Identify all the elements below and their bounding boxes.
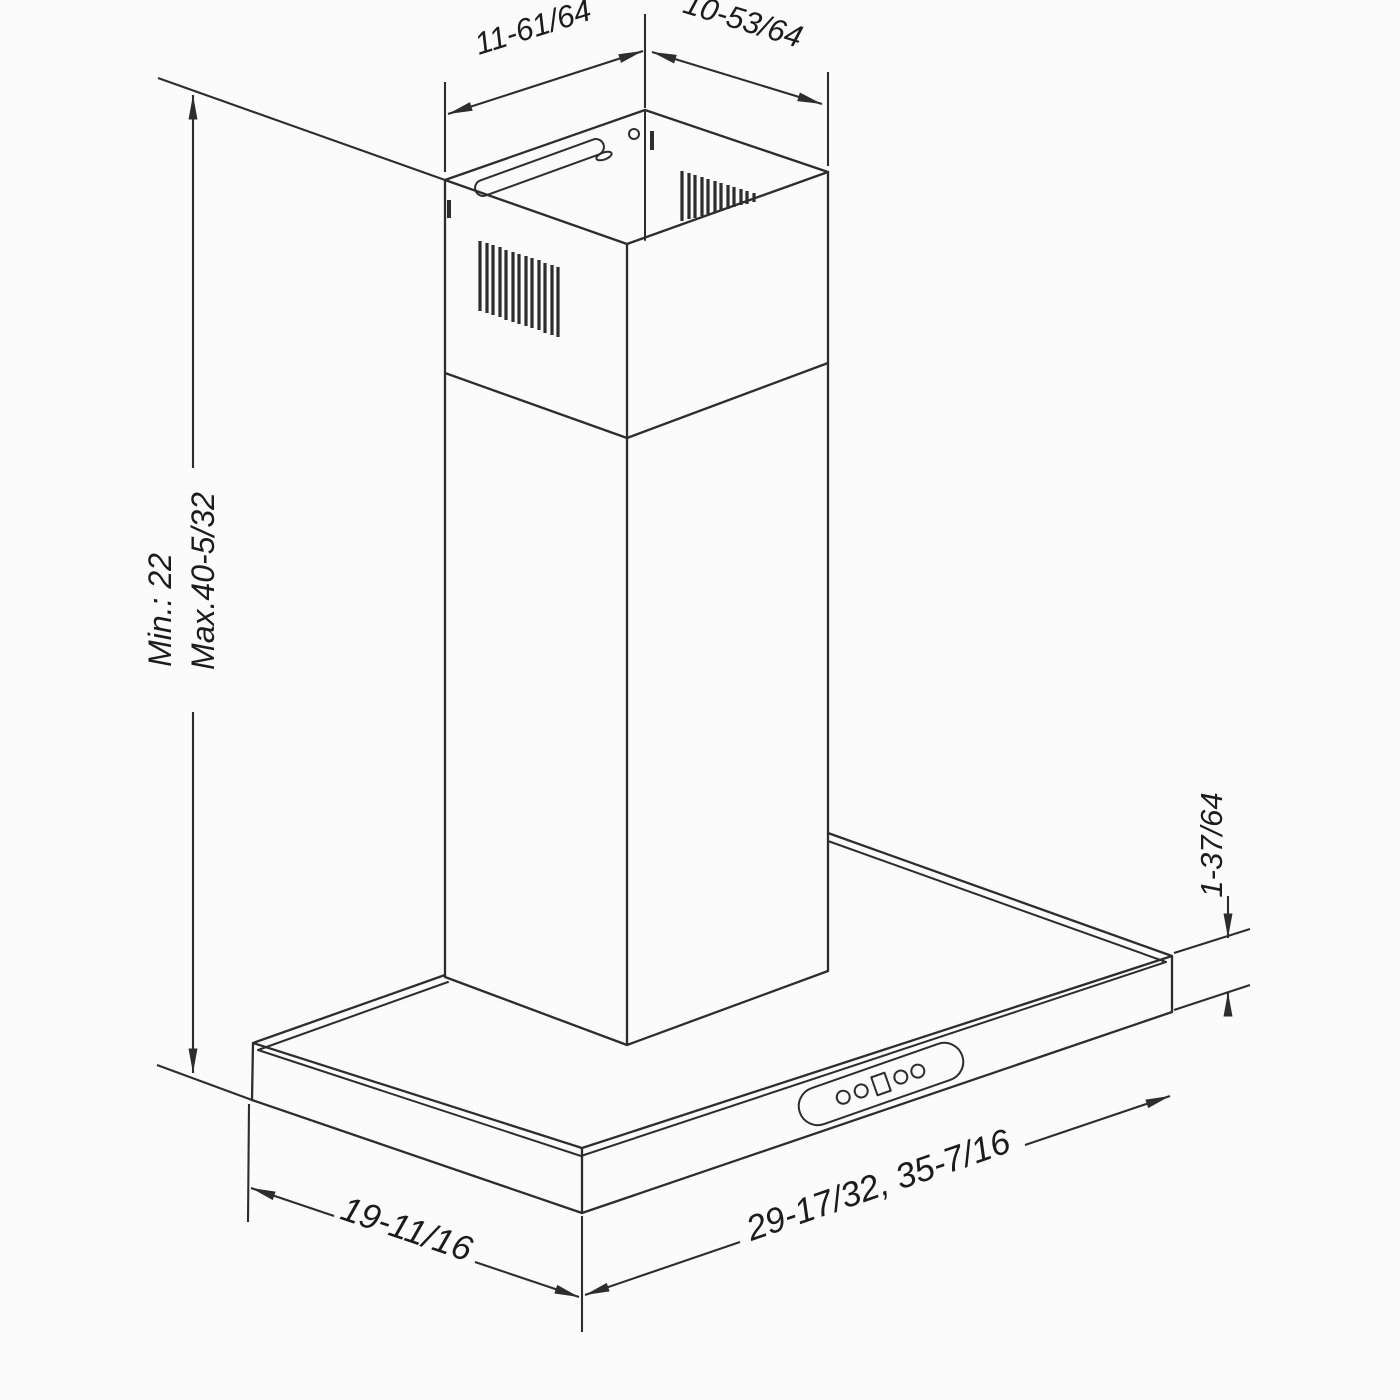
vent-louvers-inner bbox=[682, 171, 754, 221]
dimension-line bbox=[1025, 1096, 1170, 1145]
duct-rim-back bbox=[445, 110, 828, 180]
extension-line bbox=[1174, 985, 1250, 1010]
chimney-duct bbox=[445, 110, 828, 1045]
drawing-canvas: Min.: 22 Max.40-5/32 11-61/64 10-53/64 1… bbox=[0, 0, 1400, 1400]
extension-line bbox=[248, 1104, 249, 1222]
label-top-width: 11-61/64 bbox=[470, 0, 595, 62]
dimension-line bbox=[652, 52, 822, 104]
extension-line bbox=[157, 1065, 252, 1100]
label-height-min: Min.: 22 bbox=[142, 553, 178, 667]
label-top-depth: 10-53/64 bbox=[679, 0, 806, 55]
vent-louvers-front bbox=[480, 241, 558, 337]
label-hood-width: 29-17/32, 35-7/16 bbox=[740, 1122, 1015, 1249]
dimension-line bbox=[251, 1188, 334, 1216]
hood-rim-inner bbox=[258, 841, 1166, 1156]
control-button bbox=[853, 1083, 870, 1100]
mounting-hole bbox=[629, 129, 639, 139]
dimension-line bbox=[448, 51, 643, 114]
duct-seam bbox=[445, 363, 828, 438]
label-hood-depth: 19-11/16 bbox=[336, 1189, 477, 1269]
hood-rim-outer bbox=[253, 833, 1172, 1148]
label-hood-height: 1-37/64 bbox=[1194, 792, 1229, 897]
control-button bbox=[893, 1069, 910, 1086]
dimension-height: Min.: 22 Max.40-5/32 bbox=[142, 78, 445, 1100]
dimension-drawing: Min.: 22 Max.40-5/32 11-61/64 10-53/64 1… bbox=[0, 0, 1400, 1400]
extension-line bbox=[1174, 929, 1250, 953]
control-button bbox=[910, 1063, 927, 1080]
dimension-hood-depth: 19-11/16 bbox=[248, 1104, 582, 1332]
hood-corner-left bbox=[252, 1043, 253, 1100]
control-display bbox=[871, 1073, 890, 1096]
dimension-line bbox=[475, 1262, 579, 1297]
hood-body bbox=[252, 833, 1172, 1213]
dimension-hood-height: 1-37/64 bbox=[1174, 792, 1250, 1010]
extension-line bbox=[158, 78, 445, 180]
duct-rim-front bbox=[445, 172, 828, 244]
label-height-max: Max.40-5/32 bbox=[185, 492, 221, 670]
slot-tab bbox=[595, 150, 612, 162]
control-button bbox=[835, 1089, 852, 1106]
duct-base bbox=[445, 971, 828, 1045]
dimension-line bbox=[585, 1242, 740, 1295]
